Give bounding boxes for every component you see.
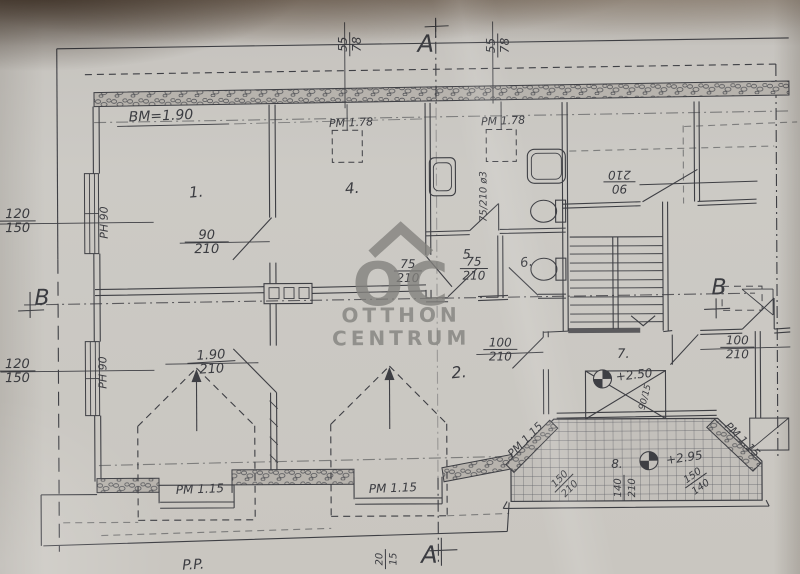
toilet (531, 200, 566, 222)
staircase (568, 237, 664, 333)
dim-55-78-right: 5578 (484, 33, 512, 57)
svg-text:8.: 8. (611, 457, 623, 471)
room-label-5: 5. (463, 248, 475, 263)
svg-text:5.: 5. (463, 248, 475, 263)
svg-text:90/15: 90/15 (638, 383, 654, 411)
svg-text:210: 210 (199, 361, 225, 377)
stair-direction-arrow (631, 316, 655, 326)
svg-text:P.P.: P.P. (182, 556, 205, 573)
svg-text:210: 210 (489, 349, 512, 363)
room-label-4: 4. (344, 179, 360, 198)
svg-text:55: 55 (484, 38, 498, 53)
svg-text:B: B (34, 286, 49, 311)
label-pp: P.P. (182, 556, 205, 573)
watermark-otthon-centrum: OC OTTHON CENTRUM (332, 228, 471, 351)
svg-text:B: B (711, 275, 726, 300)
room-label-6: 6. (519, 255, 533, 272)
level-marker-7-sub: 90/15 (638, 383, 654, 411)
svg-text:210: 210 (627, 478, 638, 497)
label-bm-height: BM=1.90 (128, 107, 193, 126)
svg-text:90: 90 (198, 228, 215, 243)
dim-190-210-room2: 1.90210 (187, 347, 237, 379)
svg-text:100: 100 (489, 335, 512, 349)
svg-text:2.: 2. (450, 362, 467, 382)
room-label-1: 1. (188, 183, 204, 202)
section-marker-b-right: B (711, 275, 726, 300)
section-marker-a-top: A (415, 30, 434, 58)
svg-text:78: 78 (350, 36, 364, 52)
svg-text:PH 90: PH 90 (98, 206, 111, 238)
floor-plan-drawing: 5578A5578BM=1.90PM 1.78PM 1.781.4.120150… (0, 0, 800, 574)
dim-20-15: 2015 (374, 549, 399, 569)
svg-text:210: 210 (194, 242, 219, 257)
svg-text:150: 150 (5, 221, 30, 236)
dim-ph90-lower: PH 90 (96, 356, 109, 388)
dim-75-210-vent: 75/210 ø3 (478, 171, 489, 222)
svg-text:140: 140 (613, 478, 624, 497)
svg-text:PM 1.78: PM 1.78 (481, 114, 526, 129)
svg-text:100: 100 (726, 333, 749, 347)
svg-text:120: 120 (5, 357, 30, 372)
svg-text:4.: 4. (344, 179, 360, 198)
room-label-2: 2. (450, 362, 467, 382)
room-label-7: 7. (617, 347, 629, 362)
svg-text:A: A (415, 30, 434, 58)
room-label-8: 8. (611, 457, 623, 471)
section-marker-b-left: B (34, 286, 49, 311)
svg-text:55: 55 (336, 37, 350, 52)
svg-text:210: 210 (462, 269, 485, 283)
svg-text:1.: 1. (188, 183, 204, 202)
svg-text:210: 210 (726, 347, 749, 361)
svg-text:20: 20 (374, 553, 385, 566)
photographed-floor-plan: 5578A5578BM=1.90PM 1.78PM 1.781.4.120150… (0, 0, 800, 574)
dim-100-210-left: 100210 (483, 335, 517, 363)
label-pm-closet-right: PM 1.78 (481, 114, 526, 129)
svg-text:A: A (419, 541, 438, 569)
svg-text:90: 90 (611, 182, 627, 196)
dim-ph90-upper: PH 90 (98, 206, 111, 238)
benchmark-symbol (593, 370, 611, 388)
svg-text:150: 150 (5, 371, 30, 386)
dim-55-78-left: 5578 (336, 32, 364, 56)
svg-text:BM=1.90: BM=1.90 (128, 107, 193, 126)
dim-100-210-right: 100210 (720, 333, 754, 361)
dim-120-150-upper: 120150 (0, 207, 36, 236)
svg-text:PM 1.15: PM 1.15 (369, 480, 418, 496)
svg-text:120: 120 (5, 207, 30, 222)
watermark-line1: OTTHON (341, 303, 460, 328)
svg-text:PM 1.78: PM 1.78 (329, 115, 374, 130)
svg-text:7.: 7. (617, 347, 629, 362)
svg-text:6.: 6. (519, 255, 533, 272)
section-marker-a-bottom: A (419, 541, 438, 569)
svg-text:78: 78 (498, 37, 512, 53)
toilet (531, 258, 566, 280)
svg-text:75/210 ø3: 75/210 ø3 (478, 171, 489, 222)
label-pm-closet-left: PM 1.78 (329, 115, 374, 130)
svg-text:PM 1.15: PM 1.15 (176, 481, 225, 497)
svg-text:210: 210 (608, 168, 631, 182)
label-pm115-bottom-right: PM 1.15 (369, 480, 418, 496)
label-pm115-bottom-left: PM 1.15 (176, 481, 225, 497)
dim-90-210-stairs: 90210 (603, 168, 635, 196)
bathtub (527, 149, 565, 183)
svg-text:15: 15 (388, 553, 399, 566)
watermark-line2: CENTRUM (332, 326, 470, 351)
benchmark-symbol (640, 452, 658, 470)
svg-text:PH 90: PH 90 (96, 356, 109, 388)
